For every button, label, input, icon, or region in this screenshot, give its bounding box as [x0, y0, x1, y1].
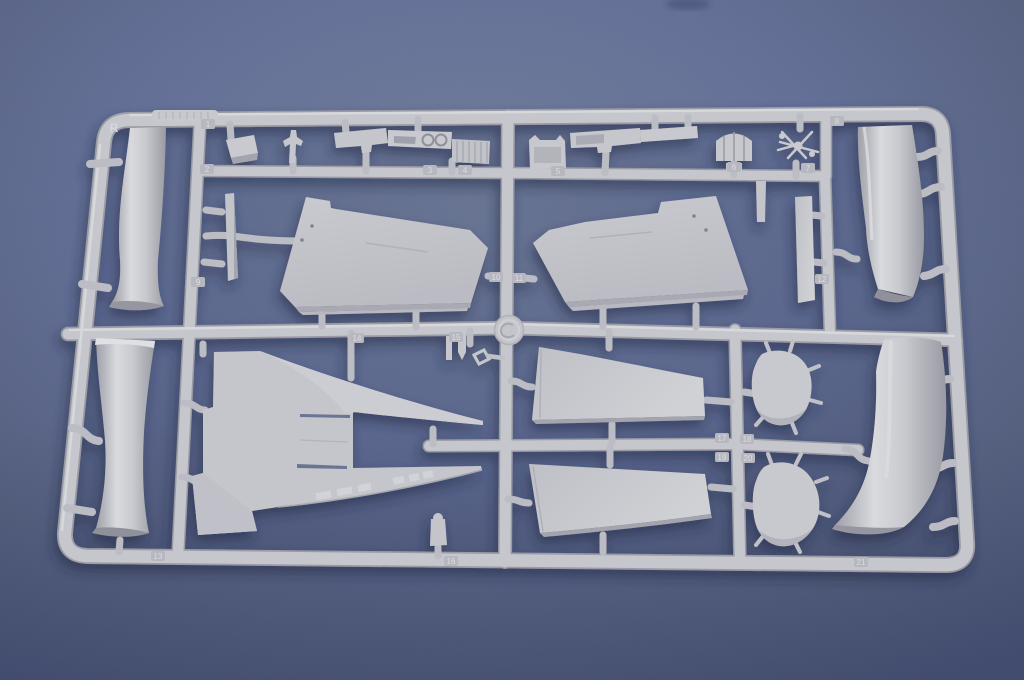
svg-text:2: 2 — [205, 165, 210, 174]
svg-text:11: 11 — [515, 274, 524, 283]
svg-text:16: 16 — [447, 557, 456, 566]
svg-text:8: 8 — [835, 117, 840, 126]
svg-text:20: 20 — [744, 454, 753, 463]
svg-text:6: 6 — [732, 163, 737, 172]
svg-text:10: 10 — [492, 273, 501, 282]
svg-text:21: 21 — [857, 558, 866, 567]
svg-text:19: 19 — [718, 453, 727, 462]
svg-text:5: 5 — [556, 167, 561, 176]
svg-text:17: 17 — [718, 434, 727, 443]
svg-text:3: 3 — [428, 166, 433, 175]
svg-text:1: 1 — [206, 120, 211, 129]
svg-text:7: 7 — [806, 164, 811, 173]
svg-text:13: 13 — [154, 552, 163, 561]
svg-text:R: R — [110, 121, 119, 135]
svg-text:14: 14 — [353, 334, 362, 343]
svg-text:9: 9 — [196, 278, 201, 287]
svg-text:4: 4 — [463, 166, 468, 175]
svg-text:18: 18 — [743, 435, 752, 444]
svg-text:12: 12 — [818, 275, 827, 284]
svg-text:15: 15 — [452, 333, 461, 342]
